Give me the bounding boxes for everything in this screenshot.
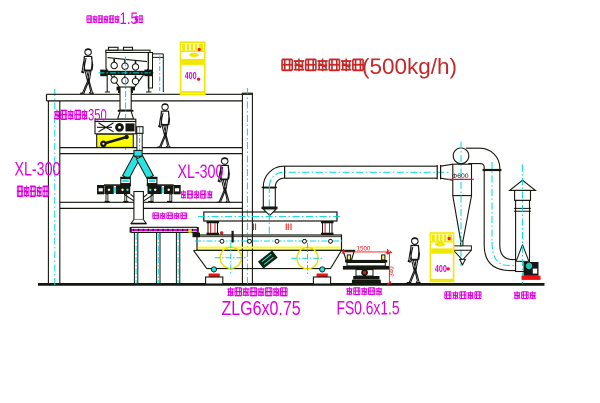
svg-text:400: 400 <box>435 262 447 274</box>
svg-text:XL-300: XL-300 <box>178 161 224 183</box>
svg-text:XL-300: XL-300 <box>15 157 61 180</box>
svg-text:FS0.6x1.5: FS0.6x1.5 <box>337 297 400 319</box>
svg-text:1.5: 1.5 <box>120 10 138 29</box>
svg-text:ZLG6x0.75: ZLG6x0.75 <box>222 297 301 319</box>
svg-text:400: 400 <box>185 70 197 82</box>
svg-text:340: 340 <box>388 266 395 277</box>
svg-text:(500kg/h): (500kg/h) <box>362 54 457 79</box>
svg-text:1500: 1500 <box>357 246 371 253</box>
svg-text:350: 350 <box>88 106 107 125</box>
svg-text:Φ600: Φ600 <box>452 173 469 180</box>
